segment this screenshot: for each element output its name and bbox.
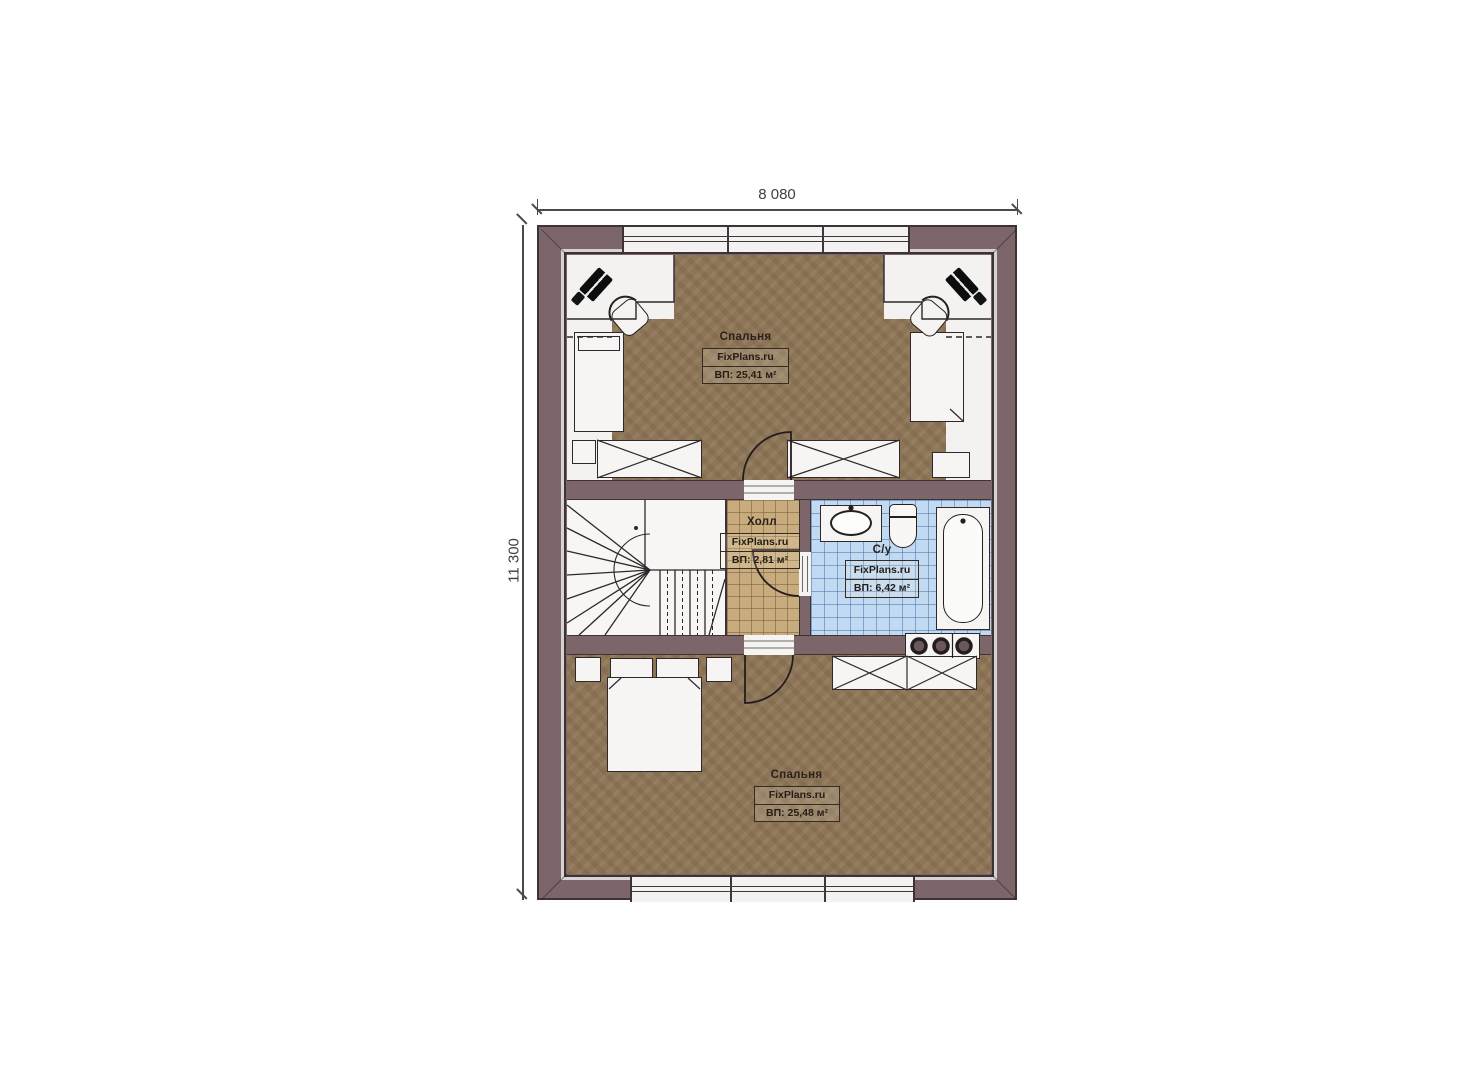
nightstand-icon — [575, 657, 601, 682]
window-glass-line — [624, 236, 908, 237]
plan-canvas: Спальня FixPlans.ru ВП: 25,41 м² Холл Fi… — [537, 225, 1017, 900]
dimension-width-label: 8 080 — [537, 186, 1017, 203]
room-label-hall: FixPlans.ru ВП: 2,81 м² — [720, 533, 800, 569]
dimension-tick — [517, 213, 528, 224]
sink-icon — [830, 510, 872, 536]
window-glass-line — [632, 891, 913, 892]
wardrobe-icon — [597, 440, 702, 478]
area-label: ВП: 25,41 м² — [703, 366, 788, 384]
room-label-bedroom-top: FixPlans.ru ВП: 25,41 м² — [702, 348, 789, 384]
nightstand-icon — [932, 452, 970, 478]
wardrobe-icon — [787, 440, 900, 478]
window-glass-line — [624, 241, 908, 242]
pillow-icon — [578, 336, 620, 351]
nightstand-icon — [572, 440, 596, 464]
dimension-extension — [1017, 199, 1018, 215]
window-glass-line — [632, 886, 913, 887]
dimension-height-label: 11 300 — [506, 521, 523, 601]
brand-label: FixPlans.ru — [703, 349, 788, 366]
window-mullion — [822, 227, 824, 252]
room-label-bathroom: FixPlans.ru ВП: 6,42 м² — [845, 560, 919, 598]
toilet-icon — [889, 504, 917, 548]
floor-plan-page: 8 080 11 300 — [0, 0, 1473, 1080]
area-label: ВП: 25,48 м² — [755, 804, 839, 822]
nightstand-icon — [706, 657, 732, 682]
room-name-bedroom-bottom: Спальня — [729, 769, 864, 781]
door-opening-bottom — [744, 635, 794, 655]
area-label: ВП: 2,81 м² — [721, 551, 799, 569]
stairs-area — [567, 500, 725, 635]
area-label: ВП: 6,42 м² — [846, 579, 918, 598]
door-opening-top — [744, 480, 794, 500]
room-name-bedroom-top: Спальня — [678, 331, 813, 343]
brand-label: FixPlans.ru — [721, 534, 799, 551]
window-mullion — [730, 877, 732, 902]
brand-label: FixPlans.ru — [755, 787, 839, 804]
door-opening-bathroom — [799, 552, 811, 596]
room-name-hall: Холл — [725, 516, 799, 528]
pillow-icon — [656, 658, 699, 678]
window-mullion — [824, 877, 826, 902]
dimension-width-line — [537, 209, 1017, 211]
dimension-height-line — [522, 225, 524, 900]
window-top — [622, 227, 910, 252]
room-label-bedroom-bottom: FixPlans.ru ВП: 25,48 м² — [754, 786, 840, 822]
room-name-bathroom: С/у — [845, 544, 919, 556]
brand-label: FixPlans.ru — [846, 561, 918, 579]
pillow-icon — [610, 658, 653, 678]
double-bed-icon — [607, 677, 702, 772]
window-mullion — [727, 227, 729, 252]
bathtub-inner — [943, 514, 983, 623]
window-bottom — [630, 877, 915, 902]
bed-icon — [910, 332, 964, 422]
dimension-extension — [537, 199, 538, 215]
wardrobe-icon — [832, 656, 977, 690]
